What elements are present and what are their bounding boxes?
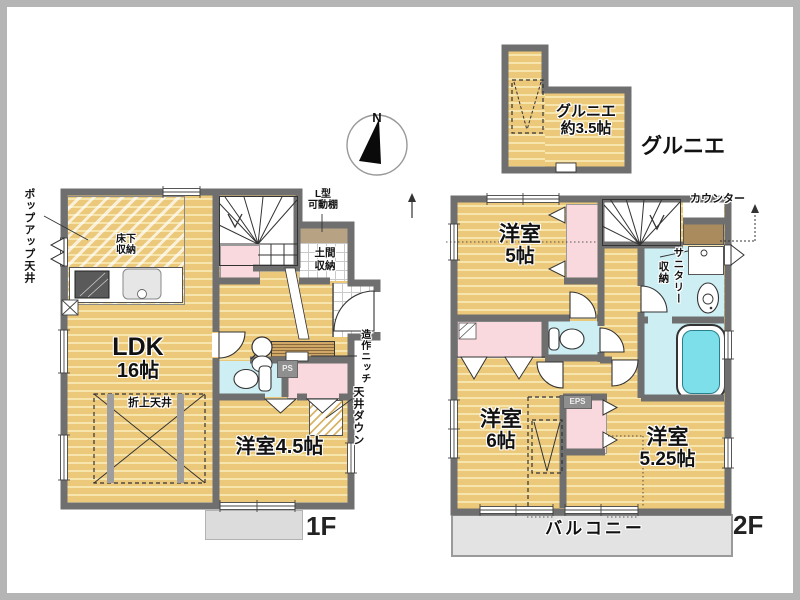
up-arrow (408, 193, 416, 218)
label-ceiling-down: 天井ダウン (351, 386, 363, 456)
eps-box: EPS (563, 395, 592, 409)
label-sanitary-line1: サニタリー (672, 247, 683, 325)
label-sanitary-line2: 収納 (657, 261, 668, 301)
label-underfloor-storage: 床下収納 (104, 235, 148, 257)
ps-box: PS (277, 360, 298, 378)
label-room-525: 洋室 5.25帖 (620, 427, 715, 470)
closet-hatch-icon (459, 323, 476, 339)
washbasin-mirror-1f-icon (252, 337, 272, 357)
label-grenier-room: グルニエ約3.5帖 (546, 103, 626, 138)
floorplan-page: ポップアップ天井 床下収納 L型可動棚 土間収納 LDK 16帖 折上天井 PS… (0, 0, 800, 600)
washbasin-2f-icon (698, 283, 719, 313)
stairs-2f (602, 199, 681, 246)
underfloor-hatch-icon (62, 300, 78, 315)
label-room-6: 洋室 6帖 (464, 409, 538, 452)
label-floor1-caption: 1F (306, 512, 336, 540)
label-doma-storage: 土間収納 (302, 247, 348, 273)
grenier-notch (556, 163, 576, 172)
toilet-1f-icon (234, 370, 258, 389)
label-balcony: バルコニー (515, 520, 675, 538)
label-popup-ceiling: ポップアップ天井 (22, 188, 34, 308)
stairs-1f (219, 197, 298, 267)
label-grenier-caption: グルニエ (641, 136, 725, 159)
label-room-5: 洋室 5帖 (478, 224, 562, 267)
sanitary-shelf-knob (701, 250, 707, 256)
label-l-shelf: L型可動棚 (299, 190, 347, 212)
toilet-2f-icon (549, 328, 559, 350)
label-oriage-ceiling: 折上天井 (112, 398, 188, 410)
label-floor2-caption: 2F (733, 511, 763, 539)
label-north: N (367, 111, 387, 125)
label-ldk: LDK 16帖 (92, 334, 184, 383)
label-room-45: 洋室4.5帖 (222, 437, 337, 459)
label-counter-2f: カウンター (690, 194, 745, 206)
